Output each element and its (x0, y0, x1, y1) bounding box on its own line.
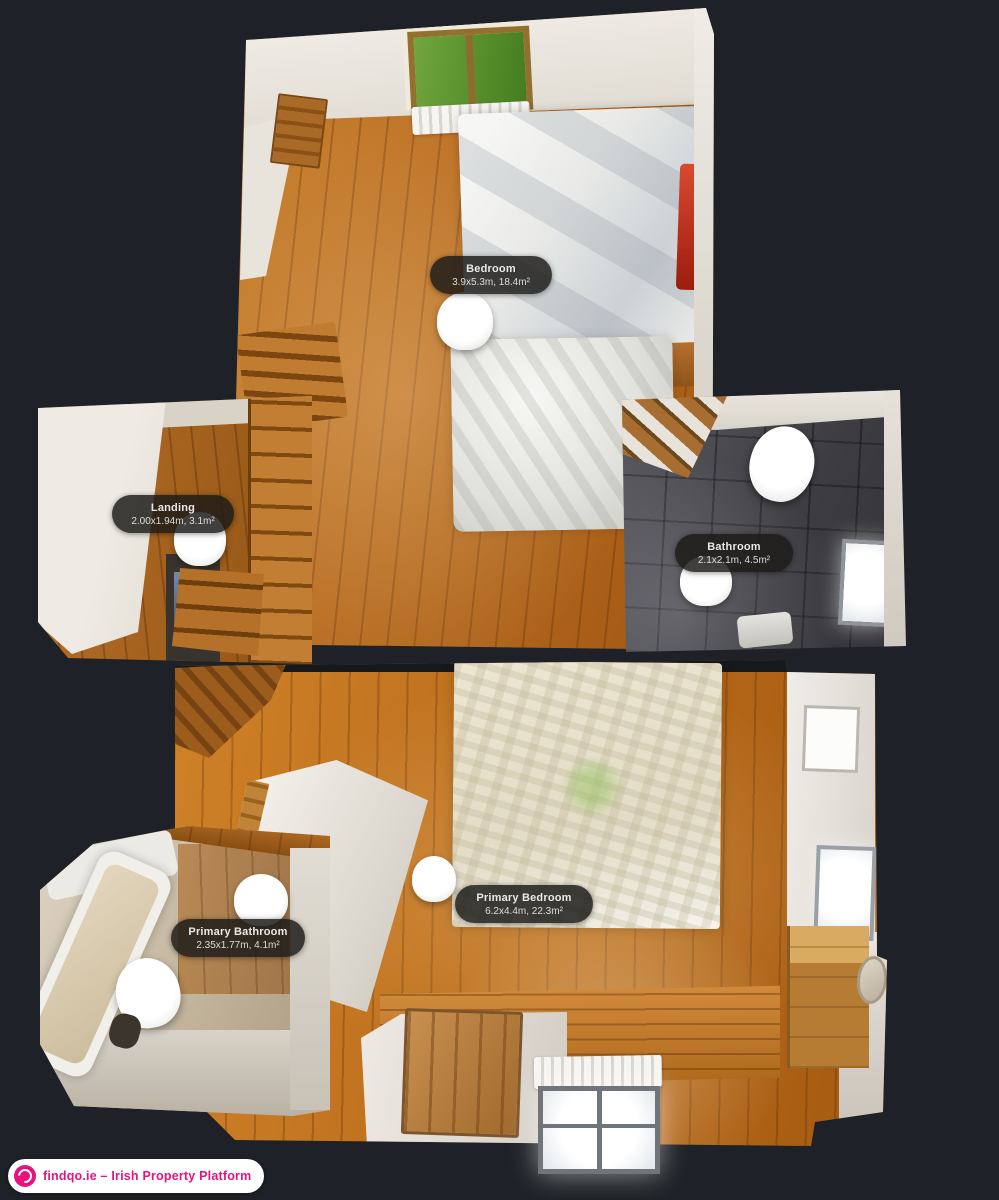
bathroom-sink (736, 611, 793, 648)
window-mullion-horizontal (543, 1124, 655, 1128)
watermark-text: findqo.ie – Irish Property Platform (43, 1169, 251, 1183)
bathroom-right-wall (884, 390, 906, 652)
bedroom-bed (458, 106, 706, 358)
room-name: Landing (120, 502, 226, 514)
room-label-primary-bedroom[interactable]: Primary Bedroom 6.2x4.4m, 22.3m² (455, 885, 593, 923)
primary-bedroom-cabinet (787, 926, 869, 1068)
staircase-treads (172, 568, 264, 656)
primary-bedroom-bottom-window-area (522, 1056, 674, 1174)
bottom-window-radiator (534, 1055, 663, 1089)
window-mullion-vertical (597, 1091, 602, 1169)
bedroom-right-wall (694, 8, 714, 404)
primary-bedroom-beams (175, 660, 295, 760)
room-name: Primary Bedroom (463, 892, 585, 904)
room-dimensions: 3.9x5.3m, 18.4m² (438, 277, 544, 288)
watermark-pill: findqo.ie – Irish Property Platform (8, 1159, 264, 1193)
bathroom-corner-shelf (622, 390, 732, 480)
bathroom-toilet (742, 419, 822, 508)
primary-bathroom-right-wall (290, 848, 330, 1110)
room-name: Bathroom (683, 541, 785, 553)
dollhouse-floorplan-view: Bedroom 3.9x5.3m, 18.4m² Landing 2.00x1.… (0, 0, 999, 1200)
room-name: Primary Bathroom (179, 926, 297, 938)
view-marker-bedroom[interactable] (437, 292, 493, 350)
room-bathroom: Bathroom 2.1x2.1m, 4.5m² (622, 390, 906, 652)
bedroom-window (402, 21, 528, 111)
findqo-logo-ring (15, 1166, 35, 1186)
room-label-bedroom[interactable]: Bedroom 3.9x5.3m, 18.4m² (430, 256, 552, 294)
room-label-landing[interactable]: Landing 2.00x1.94m, 3.1m² (112, 495, 234, 533)
room-dimensions: 6.2x4.4m, 22.3m² (463, 906, 585, 917)
room-dimensions: 2.1x2.1m, 4.5m² (683, 555, 785, 566)
view-marker-primary-bedroom[interactable] (412, 856, 456, 902)
primary-bedroom-whiteboard (802, 705, 860, 773)
bottom-window (538, 1086, 660, 1174)
room-label-primary-bathroom[interactable]: Primary Bathroom 2.35x1.77m, 4.1m² (171, 919, 305, 957)
bedroom-window-mullion (465, 35, 476, 107)
room-label-bathroom[interactable]: Bathroom 2.1x2.1m, 4.5m² (675, 534, 793, 572)
room-dimensions: 2.00x1.94m, 3.1m² (120, 516, 226, 527)
findqo-logo-icon (14, 1165, 36, 1187)
bedroom-wood-shelf (270, 93, 328, 169)
room-dimensions: 2.35x1.77m, 4.1m² (179, 940, 297, 951)
room-primary-bathroom: Primary Bathroom 2.35x1.77m, 4.1m² (38, 818, 330, 1116)
room-name: Bedroom (438, 263, 544, 275)
primary-bedroom-door (401, 1008, 523, 1138)
